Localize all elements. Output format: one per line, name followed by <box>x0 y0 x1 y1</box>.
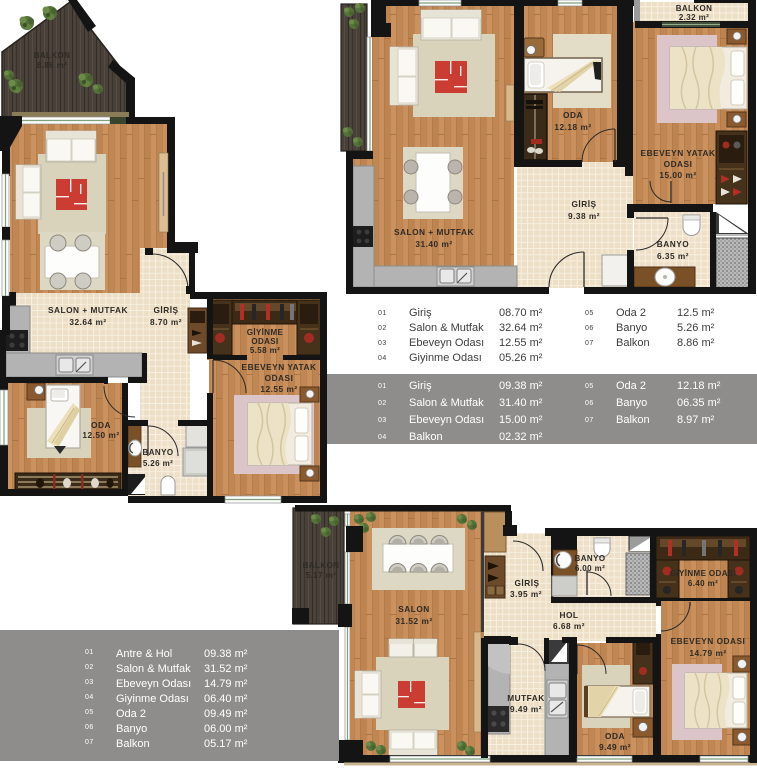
svg-text:HOL: HOL <box>559 610 578 620</box>
svg-text:6.40 m²: 6.40 m² <box>688 579 718 588</box>
svg-text:9.49 m²: 9.49 m² <box>599 742 631 752</box>
svg-text:09.49 m²: 09.49 m² <box>204 708 248 720</box>
svg-text:Salon & Mutfak: Salon & Mutfak <box>409 322 484 334</box>
svg-text:03: 03 <box>378 417 387 424</box>
svg-text:02: 02 <box>85 664 94 671</box>
svg-text:12.55 m²: 12.55 m² <box>499 337 543 349</box>
svg-text:06.40 m²: 06.40 m² <box>204 693 248 705</box>
svg-text:02: 02 <box>378 400 387 407</box>
svg-text:01: 01 <box>378 383 387 390</box>
svg-text:Salon & Mutfak: Salon & Mutfak <box>116 663 191 675</box>
svg-text:BALKON: BALKON <box>303 561 340 570</box>
svg-text:07: 07 <box>585 417 594 424</box>
svg-text:ODASI: ODASI <box>251 337 278 346</box>
svg-text:EBEVEYN YATAK: EBEVEYN YATAK <box>641 148 716 158</box>
svg-text:GİYİNME ODASI: GİYİNME ODASI <box>670 569 737 578</box>
svg-text:Oda 2: Oda 2 <box>616 380 646 392</box>
svg-text:14.79 m²: 14.79 m² <box>204 678 248 690</box>
svg-text:02.32 m²: 02.32 m² <box>499 431 543 443</box>
svg-text:8.97 m²: 8.97 m² <box>677 414 715 426</box>
svg-text:05: 05 <box>85 709 94 716</box>
svg-text:09.38 m²: 09.38 m² <box>204 648 248 660</box>
svg-text:02: 02 <box>378 325 387 332</box>
svg-text:Giyinme Odası: Giyinme Odası <box>409 352 482 364</box>
svg-text:Banyo: Banyo <box>116 723 147 735</box>
svg-text:12.50 m²: 12.50 m² <box>82 430 119 440</box>
svg-text:GİRİŞ: GİRİŞ <box>571 199 596 209</box>
svg-text:01: 01 <box>85 649 94 656</box>
svg-text:04: 04 <box>85 694 94 701</box>
svg-text:31.52 m²: 31.52 m² <box>395 616 432 626</box>
svg-text:BANYO: BANYO <box>657 239 690 249</box>
svg-text:6.35 m²: 6.35 m² <box>657 251 689 261</box>
svg-text:Giriş: Giriş <box>409 380 432 392</box>
svg-text:08.70 m²: 08.70 m² <box>499 307 543 319</box>
svg-text:BALKON: BALKON <box>676 4 713 13</box>
svg-text:Oda 2: Oda 2 <box>616 307 646 319</box>
svg-text:Antre & Hol: Antre & Hol <box>116 648 172 660</box>
svg-text:Ebeveyn Odası: Ebeveyn Odası <box>409 337 484 349</box>
svg-text:Giyinme Odası: Giyinme Odası <box>116 693 189 705</box>
svg-text:SALON: SALON <box>398 604 430 614</box>
svg-text:5.17 m²: 5.17 m² <box>306 571 336 580</box>
svg-text:32.64 m²: 32.64 m² <box>69 317 106 327</box>
svg-text:31.52 m²: 31.52 m² <box>204 663 248 675</box>
svg-text:9.38 m²: 9.38 m² <box>568 211 600 221</box>
svg-text:04: 04 <box>378 355 387 362</box>
svg-text:06: 06 <box>585 325 594 332</box>
svg-text:ODASI: ODASI <box>664 159 693 169</box>
svg-text:14.79 m²: 14.79 m² <box>689 648 726 658</box>
svg-text:03: 03 <box>378 340 387 347</box>
svg-text:2.32 m²: 2.32 m² <box>679 13 709 22</box>
svg-text:Oda 2: Oda 2 <box>116 708 146 720</box>
svg-text:06.00 m²: 06.00 m² <box>204 723 248 735</box>
svg-text:8.86 m²: 8.86 m² <box>37 61 67 70</box>
svg-text:ODA: ODA <box>91 420 111 430</box>
svg-text:EBEVEYN YATAK: EBEVEYN YATAK <box>242 362 317 372</box>
svg-text:06.35 m²: 06.35 m² <box>677 397 721 409</box>
svg-text:6.68 m²: 6.68 m² <box>553 621 585 631</box>
svg-text:GİRİŞ: GİRİŞ <box>153 305 178 315</box>
svg-text:9.49 m²: 9.49 m² <box>510 704 542 714</box>
svg-text:ODA: ODA <box>563 110 583 120</box>
svg-text:Ebeveyn Odası: Ebeveyn Odası <box>409 414 484 426</box>
svg-text:03: 03 <box>85 679 94 686</box>
svg-text:3.95 m²: 3.95 m² <box>510 589 542 599</box>
svg-text:12.5 m²: 12.5 m² <box>677 307 715 319</box>
svg-text:ODASI: ODASI <box>265 373 294 383</box>
svg-text:31.40 m²: 31.40 m² <box>499 397 543 409</box>
svg-text:Banyo: Banyo <box>616 322 647 334</box>
svg-text:05.26 m²: 05.26 m² <box>499 352 543 364</box>
svg-text:BANYO: BANYO <box>575 554 606 563</box>
svg-text:GİRİŞ: GİRİŞ <box>514 578 539 588</box>
svg-text:Ebeveyn Odası: Ebeveyn Odası <box>116 678 191 690</box>
svg-text:SALON + MUTFAK: SALON + MUTFAK <box>48 305 128 315</box>
svg-text:06: 06 <box>585 400 594 407</box>
svg-text:31.40 m²: 31.40 m² <box>415 239 452 249</box>
svg-text:Balkon: Balkon <box>616 337 650 349</box>
svg-text:6.00 m²: 6.00 m² <box>575 564 605 573</box>
svg-text:BANYO: BANYO <box>143 448 174 457</box>
svg-text:GİYİNME: GİYİNME <box>247 328 284 337</box>
svg-text:EBEVEYN ODASI: EBEVEYN ODASI <box>671 636 746 646</box>
svg-text:12.18 m²: 12.18 m² <box>554 122 591 132</box>
svg-text:8.70 m²: 8.70 m² <box>150 317 182 327</box>
svg-text:07: 07 <box>585 340 594 347</box>
svg-text:12.55 m²: 12.55 m² <box>260 384 297 394</box>
svg-text:Balkon: Balkon <box>116 738 150 750</box>
svg-text:SALON + MUTFAK: SALON + MUTFAK <box>394 227 474 237</box>
svg-text:Balkon: Balkon <box>616 414 650 426</box>
svg-text:BALKON: BALKON <box>34 51 71 60</box>
svg-text:ODA: ODA <box>605 731 625 741</box>
svg-text:05: 05 <box>585 383 594 390</box>
svg-text:Balkon: Balkon <box>409 431 443 443</box>
svg-text:04: 04 <box>378 434 387 441</box>
svg-text:06: 06 <box>85 724 94 731</box>
svg-text:5.26 m²: 5.26 m² <box>677 322 715 334</box>
svg-text:15.00 m²: 15.00 m² <box>659 170 696 180</box>
svg-text:01: 01 <box>378 310 387 317</box>
svg-text:Giriş: Giriş <box>409 307 432 319</box>
svg-text:Banyo: Banyo <box>616 397 647 409</box>
svg-text:15.00 m²: 15.00 m² <box>499 414 543 426</box>
svg-text:07: 07 <box>85 739 94 746</box>
svg-text:05: 05 <box>585 310 594 317</box>
svg-text:12.18 m²: 12.18 m² <box>677 380 721 392</box>
svg-text:32.64 m²: 32.64 m² <box>499 322 543 334</box>
svg-text:5.26 m²: 5.26 m² <box>143 459 173 468</box>
svg-text:8.86 m²: 8.86 m² <box>677 337 715 349</box>
svg-text:Salon & Mutfak: Salon & Mutfak <box>409 397 484 409</box>
svg-text:05.17 m²: 05.17 m² <box>204 738 248 750</box>
svg-text:09.38 m²: 09.38 m² <box>499 380 543 392</box>
svg-text:MUTFAK: MUTFAK <box>507 693 545 703</box>
svg-text:5.58 m²: 5.58 m² <box>250 346 280 355</box>
